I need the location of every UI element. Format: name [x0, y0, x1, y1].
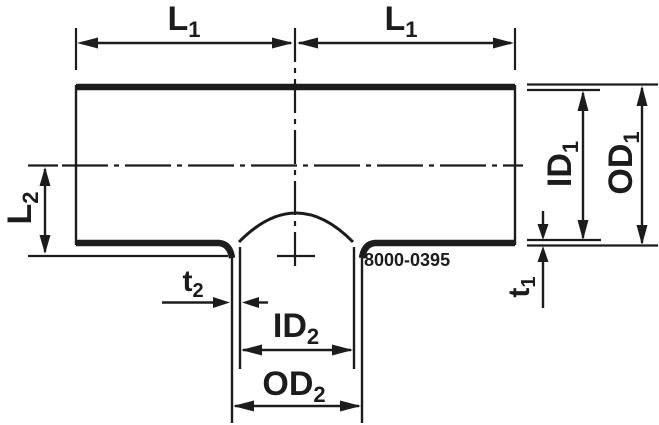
dim-t1: t1	[503, 211, 549, 308]
arrowhead-down	[40, 235, 51, 254]
arrowhead-left	[297, 38, 318, 49]
dim-id1: ID1	[541, 91, 589, 241]
tee-fitting-drawing: L1 L1 L2 ID1 OD1 t1	[0, 0, 659, 425]
dim-label-id2: ID2	[273, 307, 319, 349]
arrowhead-left	[242, 297, 259, 308]
dim-label-t1: t1	[503, 276, 540, 297]
dim-l1-left: L1	[77, 0, 293, 49]
dim-label-l1-left: L1	[167, 0, 200, 42]
arrowhead-right	[340, 401, 361, 412]
dim-label-od2: OD2	[262, 365, 325, 407]
arrowhead-right	[493, 38, 514, 49]
dim-label-l1-right: L1	[384, 0, 417, 42]
tee-diagram-canvas: L1 L1 L2 ID1 OD1 t1	[0, 0, 659, 425]
arrowhead-left	[233, 401, 254, 412]
arrowhead-right	[213, 297, 230, 308]
dim-od1: OD1	[602, 86, 648, 246]
arrowhead-right	[332, 345, 353, 356]
dim-id2: ID2	[241, 307, 353, 356]
arrowhead-right	[272, 38, 293, 49]
dim-label-id1: ID1	[541, 141, 583, 187]
dim-l1-right: L1	[297, 0, 514, 49]
arrowhead-down	[578, 220, 589, 240]
dim-od2: OD2	[233, 365, 361, 412]
dim-l2: L2	[1, 167, 51, 254]
dim-label-l2: L2	[1, 191, 43, 224]
arrowhead-left	[241, 345, 262, 356]
arrowhead-down	[538, 224, 549, 240]
dim-label-od1: OD1	[602, 131, 644, 194]
arrowhead-up	[538, 246, 549, 262]
arrowhead-up	[40, 167, 51, 186]
centerlines	[62, 28, 523, 272]
arrowhead-down	[637, 225, 648, 245]
dim-t2: t2	[162, 265, 268, 308]
arrowhead-left	[77, 38, 98, 49]
arrowhead-up	[637, 86, 648, 107]
dim-label-t2: t2	[182, 265, 203, 302]
part-number-label: 8000-0395	[364, 250, 450, 270]
arrowhead-up	[578, 91, 589, 112]
